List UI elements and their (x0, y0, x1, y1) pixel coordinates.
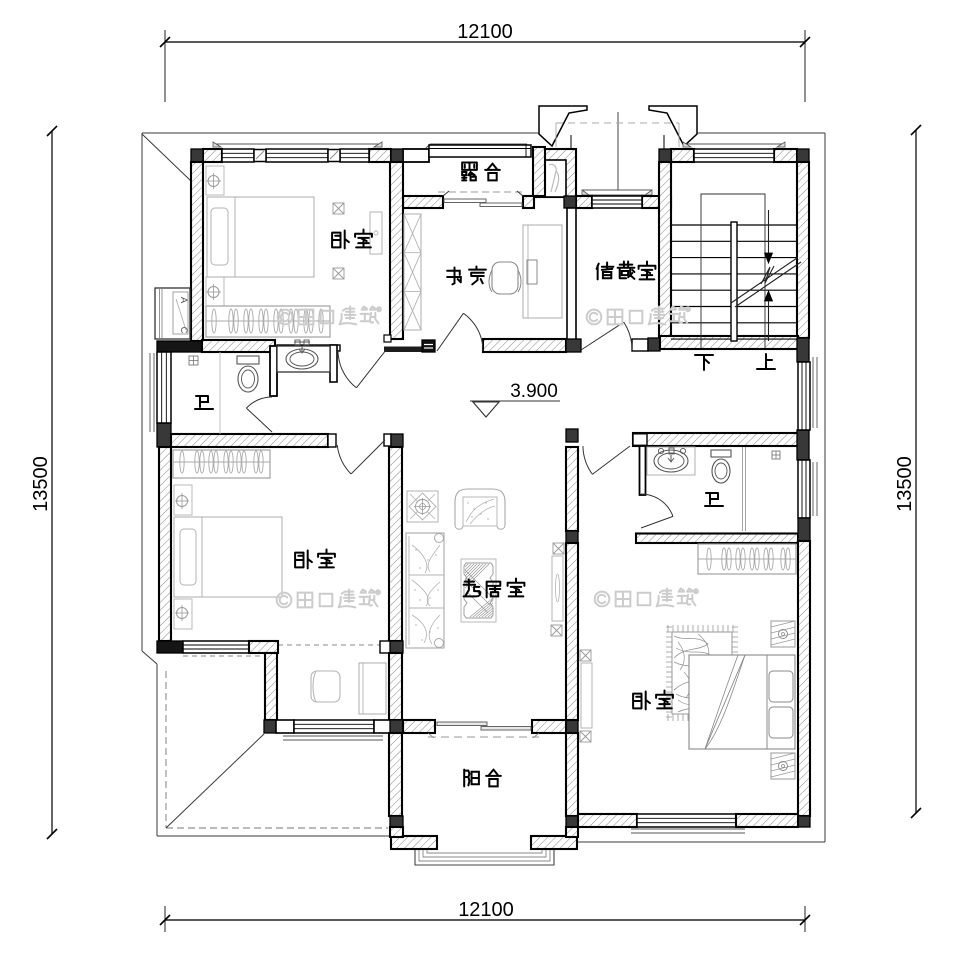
svg-text:13500: 13500 (30, 456, 52, 512)
svg-text:3.900: 3.900 (510, 381, 558, 402)
svg-text:A: A (178, 297, 189, 304)
svg-text:C: C (178, 327, 189, 334)
svg-text:12100: 12100 (457, 21, 513, 43)
svg-text:13500: 13500 (894, 456, 916, 512)
svg-text:12100: 12100 (458, 899, 514, 921)
